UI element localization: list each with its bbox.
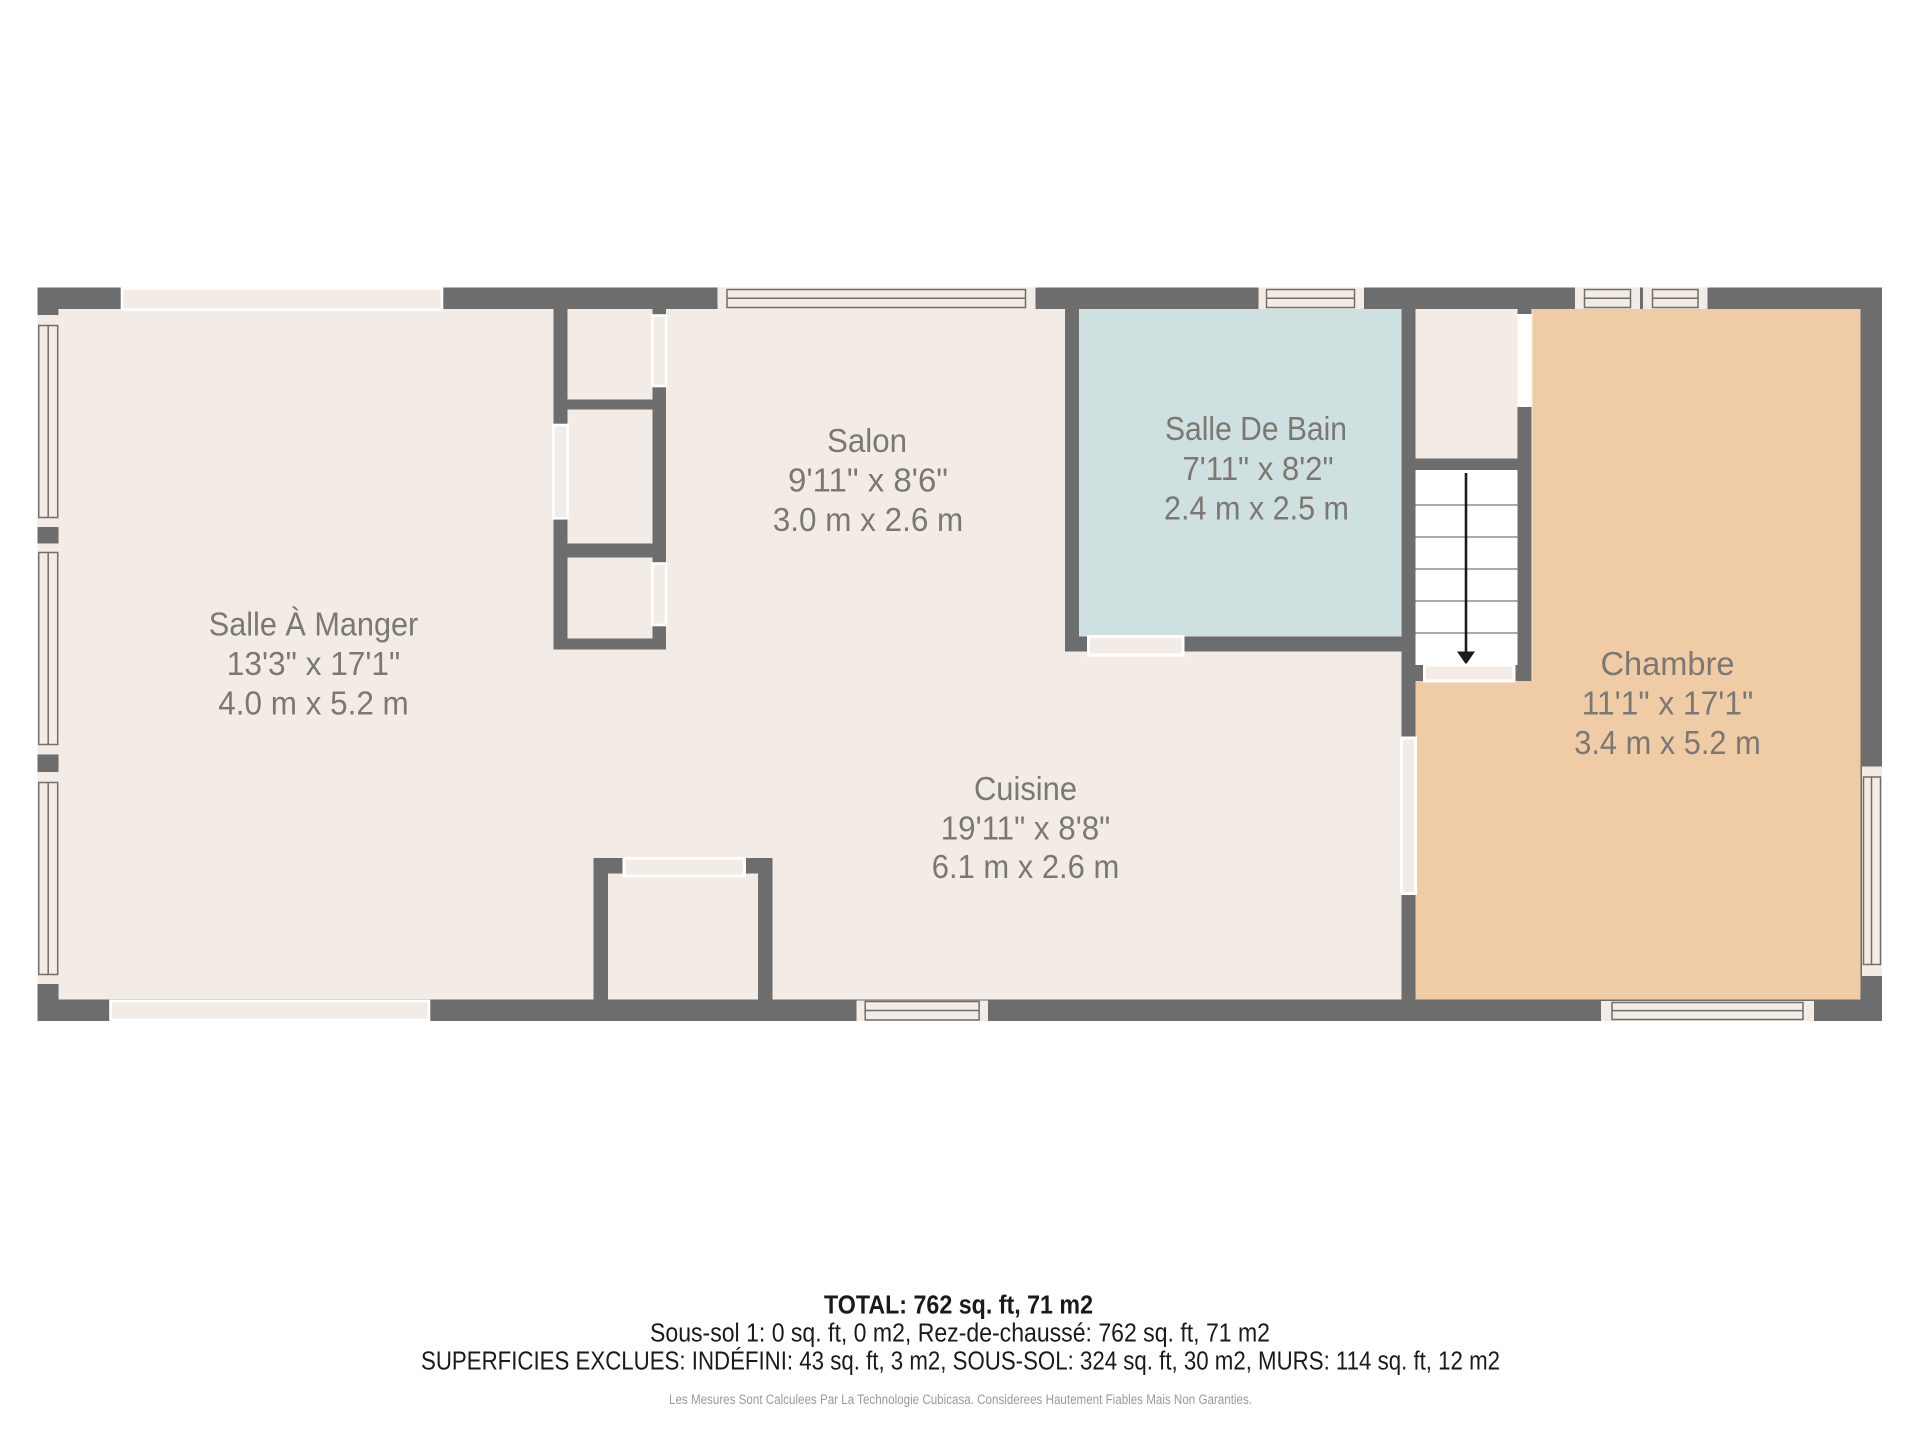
svg-text:7'11" x 8'2": 7'11" x 8'2" [1183,450,1334,487]
svg-text:Salle De Bain: Salle De Bain [1165,410,1347,447]
svg-text:TOTAL: 762 sq. ft, 71 m2: TOTAL: 762 sq. ft, 71 m2 [824,1292,1093,1320]
svg-text:Chambre: Chambre [1601,645,1735,682]
svg-text:4.0 m x 5.2 m: 4.0 m x 5.2 m [218,685,409,722]
svg-text:9'11" x 8'6": 9'11" x 8'6" [788,462,948,499]
svg-text:3.4 m x 5.2 m: 3.4 m x 5.2 m [1574,724,1761,761]
svg-text:Salle À Manger: Salle À Manger [209,605,419,642]
svg-text:11'1" x 17'1": 11'1" x 17'1" [1582,685,1754,722]
svg-text:Salon: Salon [827,422,907,459]
svg-text:13'3" x 17'1": 13'3" x 17'1" [227,645,401,682]
svg-text:Sous-sol 1: 0 sq. ft, 0 m2, Re: Sous-sol 1: 0 sq. ft, 0 m2, Rez-de-chaus… [650,1320,1270,1348]
svg-text:SUPERFICIES EXCLUES: INDÉFINI:: SUPERFICIES EXCLUES: INDÉFINI: 43 sq. ft… [421,1347,1500,1376]
svg-text:Les Mesures Sont Calculees Par: Les Mesures Sont Calculees Par La Techno… [669,1392,1252,1407]
svg-text:Cuisine: Cuisine [974,770,1077,807]
svg-text:19'11" x 8'8": 19'11" x 8'8" [941,809,1111,846]
svg-text:6.1 m x 2.6 m: 6.1 m x 2.6 m [932,848,1120,885]
svg-text:2.4 m x 2.5 m: 2.4 m x 2.5 m [1164,490,1349,527]
svg-text:3.0 m x 2.6 m: 3.0 m x 2.6 m [773,501,964,538]
